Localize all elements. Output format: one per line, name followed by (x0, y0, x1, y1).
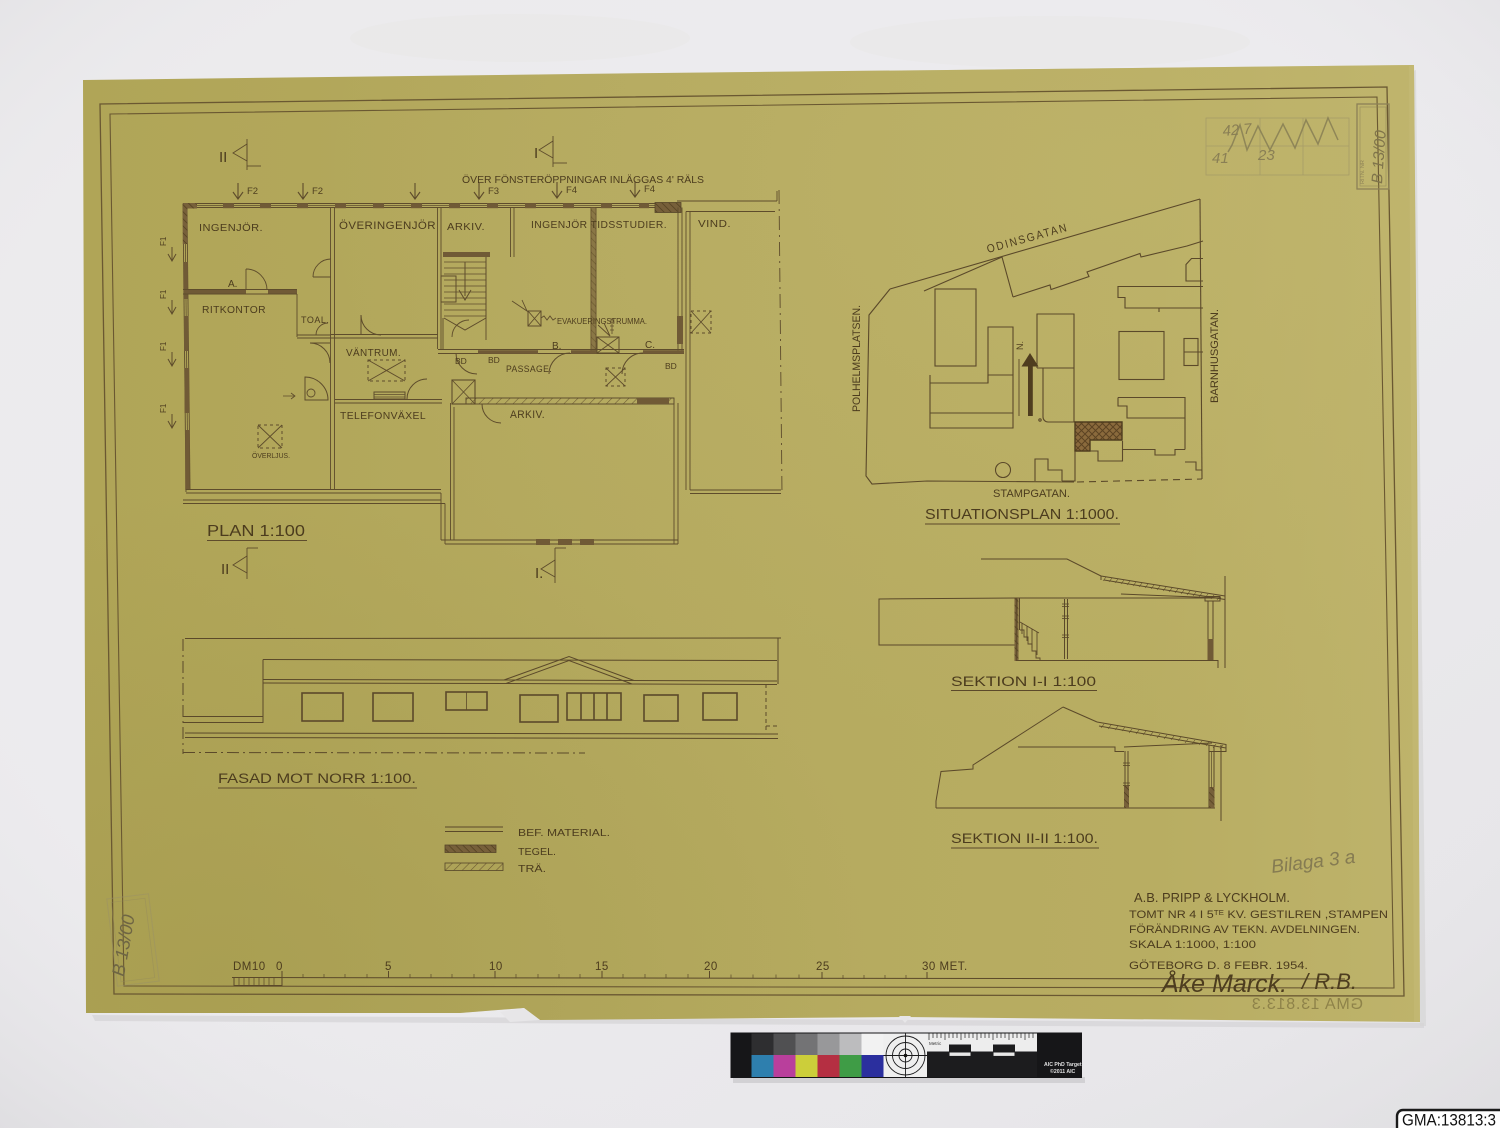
svg-text:FÖRÄNDRING AV TEKN. AVDELNINGE: FÖRÄNDRING AV TEKN. AVDELNINGEN. (1129, 924, 1360, 936)
svg-text:ÖVERINGENJÖR: ÖVERINGENJÖR (339, 220, 436, 232)
svg-text:FASAD MOT NORR 1:100.: FASAD MOT NORR 1:100. (218, 771, 416, 786)
svg-text:25: 25 (816, 961, 830, 973)
svg-text:VIND.: VIND. (698, 218, 731, 230)
svg-text:DM10: DM10 (233, 961, 266, 973)
svg-text:SEKTION II-II 1:100.: SEKTION II-II 1:100. (951, 831, 1098, 846)
svg-text:F2: F2 (247, 186, 258, 197)
svg-text:/ R.B.: / R.B. (1300, 969, 1357, 994)
svg-text:BD: BD (665, 361, 677, 371)
svg-text:POLHELMSPLATSEN.: POLHELMSPLATSEN. (851, 305, 863, 412)
svg-text:TOMT NR 4 I 5TE KV. GESTILREN: TOMT NR 4 I 5TE KV. GESTILREN ,STAMPEN (1129, 909, 1388, 921)
svg-text:GMA:13813:3: GMA:13813:3 (1402, 1111, 1496, 1128)
svg-text:II: II (219, 149, 227, 166)
svg-text:VÄNTRUM.: VÄNTRUM. (346, 347, 401, 359)
svg-text:41: 41 (1212, 150, 1229, 167)
svg-text:RITKONTOR: RITKONTOR (202, 304, 266, 316)
svg-text:C.: C. (645, 340, 655, 351)
svg-text:STAMPGATAN.: STAMPGATAN. (993, 488, 1070, 500)
svg-text:I.: I. (535, 565, 543, 582)
svg-text:PLAN 1:100: PLAN 1:100 (207, 523, 305, 540)
svg-text:30 MET.: 30 MET. (922, 961, 968, 973)
svg-text:TEGEL.: TEGEL. (518, 846, 556, 858)
svg-text:TELEFONVÄXEL: TELEFONVÄXEL (340, 410, 426, 422)
svg-text:F1: F1 (159, 403, 168, 413)
svg-text:GMA 13.813.3: GMA 13.813.3 (1251, 996, 1363, 1013)
svg-text:SEKTION I-I 1:100: SEKTION I-I 1:100 (951, 674, 1096, 689)
svg-text:SKALA 1:1000, 1:100: SKALA 1:1000, 1:100 (1129, 939, 1256, 951)
svg-text:A.: A. (228, 279, 237, 290)
svg-text:©2011 AIC: ©2011 AIC (1050, 1068, 1076, 1075)
svg-text:23: 23 (1257, 147, 1275, 164)
svg-text:RITN. NR: RITN. NR (1360, 160, 1366, 184)
svg-text:F3: F3 (488, 186, 499, 197)
svg-text:SITUATIONSPLAN 1:1000.: SITUATIONSPLAN 1:1000. (925, 507, 1119, 523)
svg-text:B.: B. (552, 341, 561, 352)
svg-text:I: I (534, 145, 538, 162)
svg-text:F1: F1 (159, 289, 168, 299)
svg-text:INGENJÖR.: INGENJÖR. (199, 222, 263, 234)
svg-text:Metric: Metric (929, 1041, 942, 1046)
svg-text:F1: F1 (159, 341, 168, 351)
svg-text:F2: F2 (312, 186, 323, 197)
svg-text:20: 20 (704, 961, 718, 973)
svg-text:II: II (221, 561, 229, 578)
svg-text:TRÄ.: TRÄ. (518, 863, 546, 875)
svg-text:F4: F4 (566, 185, 577, 196)
svg-text:ARKIV.: ARKIV. (510, 409, 545, 421)
svg-text:EVAKUERINGSTRUMMA.: EVAKUERINGSTRUMMA. (557, 317, 647, 326)
svg-text:ÖVERLJUS.: ÖVERLJUS. (252, 451, 290, 460)
svg-text:BD: BD (488, 355, 500, 365)
svg-text:BARNHUSGATAN.: BARNHUSGATAN. (1209, 309, 1221, 403)
svg-text:ÖVER FÖNSTERÖPPNINGAR INLÄGGAS: ÖVER FÖNSTERÖPPNINGAR INLÄGGAS 4' RÄLS (462, 174, 704, 186)
svg-text:N.: N. (1015, 341, 1025, 350)
svg-text:A.B. PRIPP & LYCKHOLM.: A.B. PRIPP & LYCKHOLM. (1134, 891, 1290, 905)
svg-text:AIC PhD Target: AIC PhD Target (1044, 1062, 1082, 1068)
svg-text:Åke Marck.: Åke Marck. (1160, 968, 1287, 998)
svg-text:PASSAGE.: PASSAGE. (506, 364, 552, 375)
svg-text:F4: F4 (644, 184, 655, 195)
svg-text:ARKIV.: ARKIV. (447, 222, 485, 233)
svg-text:BEF. MATERIAL.: BEF. MATERIAL. (518, 827, 610, 839)
svg-text:BD: BD (455, 356, 467, 366)
svg-text:F1: F1 (159, 236, 168, 246)
svg-text:10: 10 (489, 961, 503, 973)
svg-text:INGENJÖR TIDSSTUDIER.: INGENJÖR TIDSSTUDIER. (531, 219, 667, 231)
